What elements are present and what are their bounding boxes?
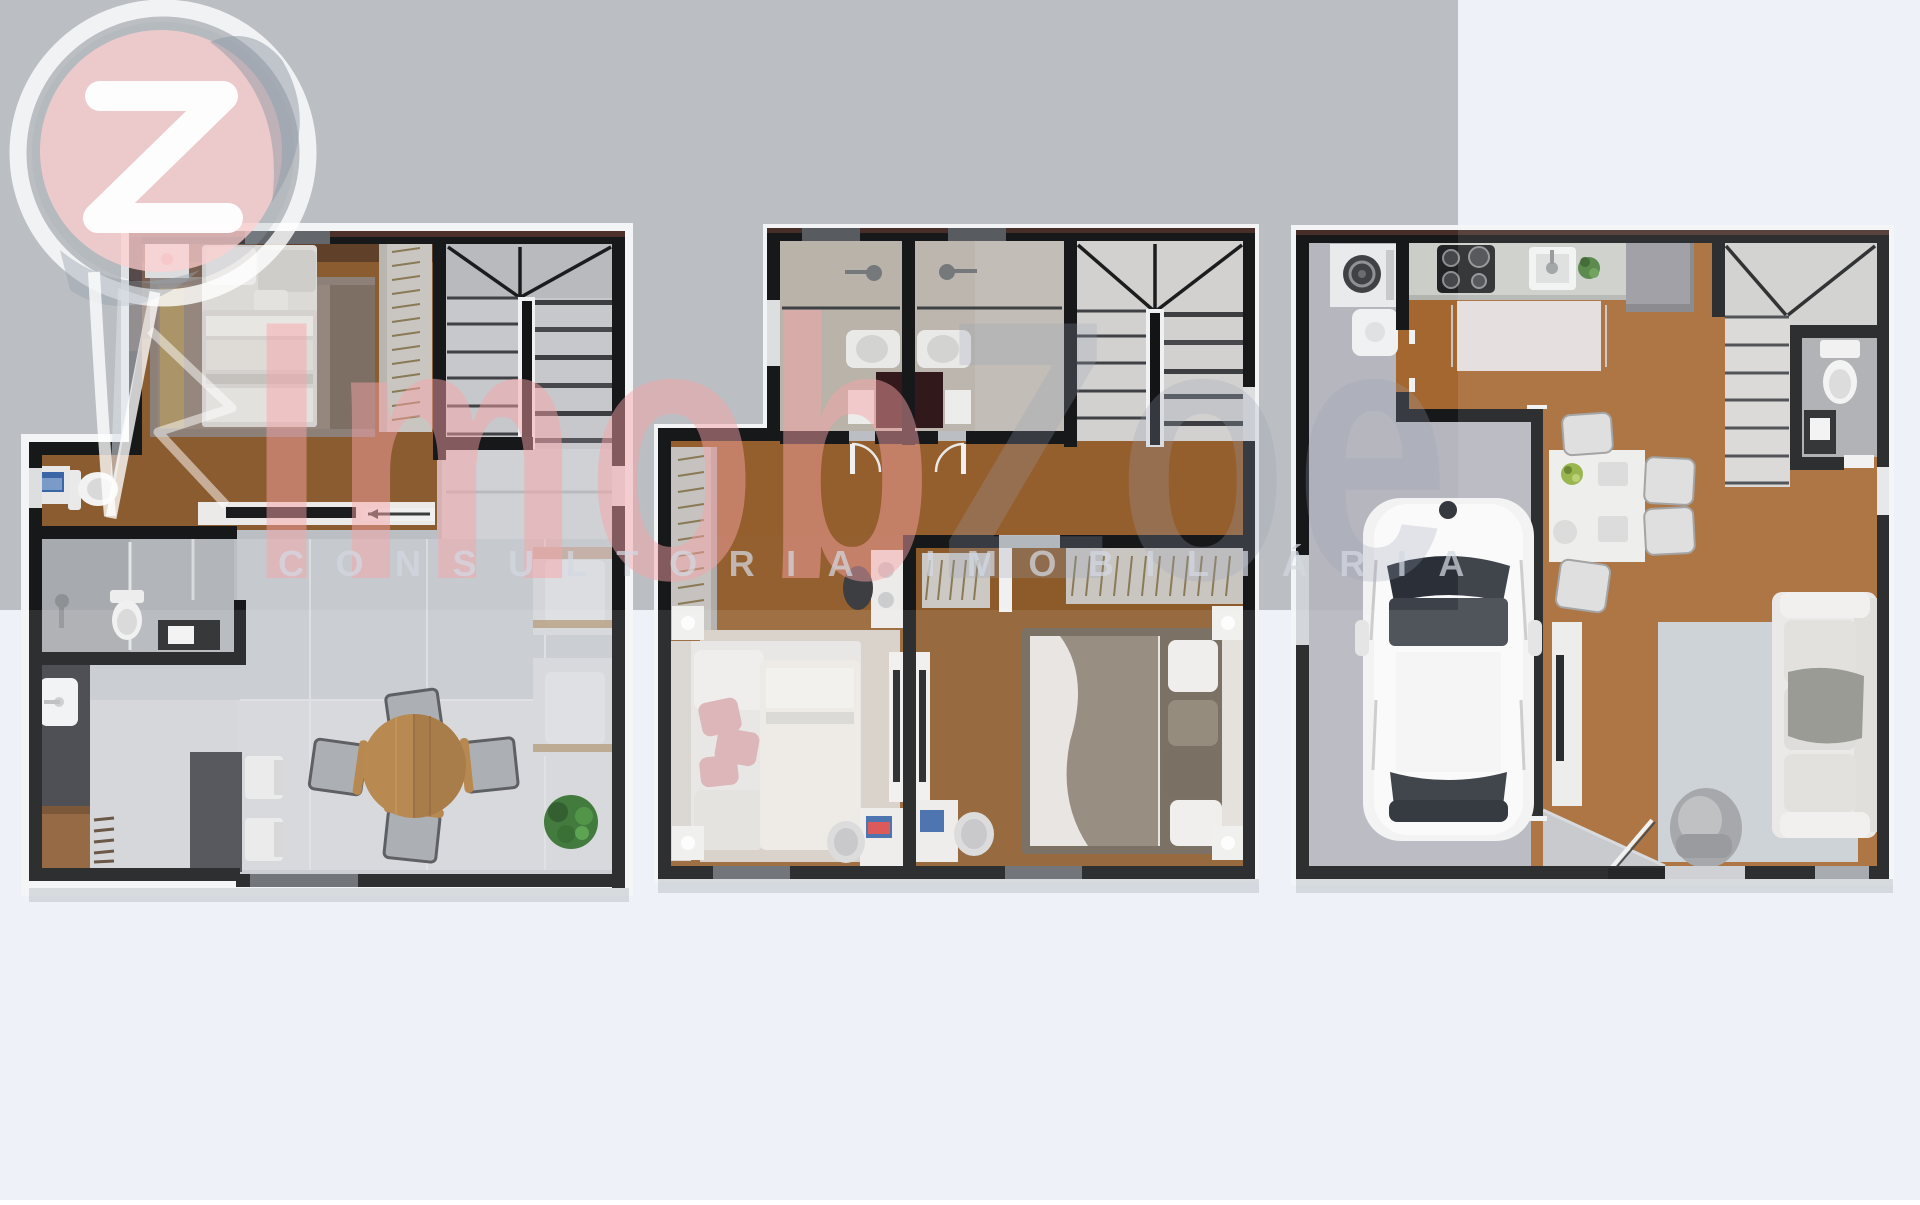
- svg-text:CONSULTORIA IMOBILIÁRIA: CONSULTORIA IMOBILIÁRIA: [278, 543, 1496, 584]
- svg-text:ImobZoe: ImobZoe: [248, 244, 1457, 657]
